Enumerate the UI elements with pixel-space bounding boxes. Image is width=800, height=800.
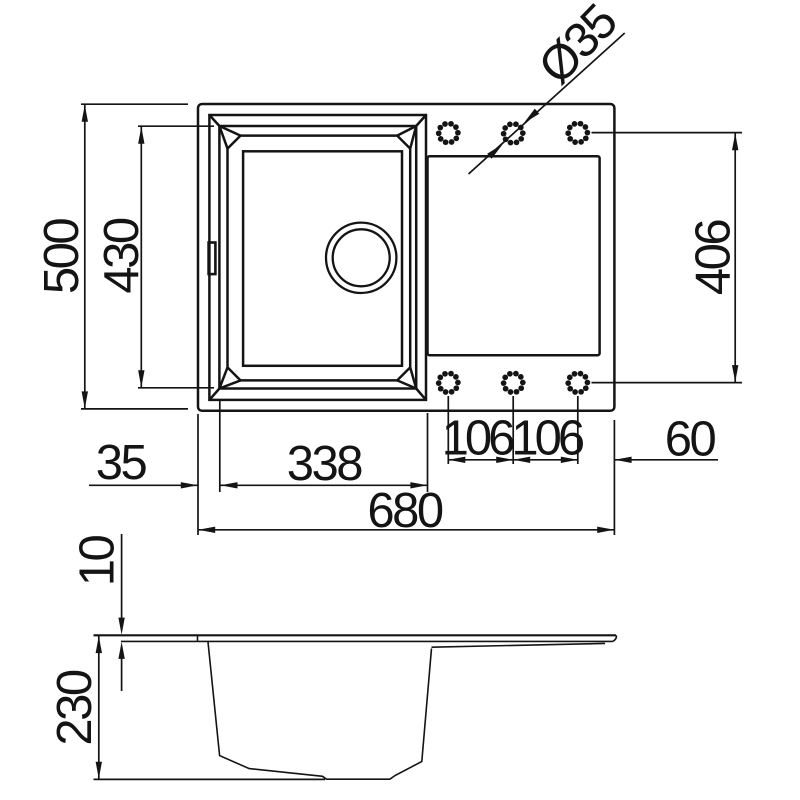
svg-text:Ø35: Ø35 <box>529 0 628 94</box>
svg-text:406: 406 <box>687 220 741 296</box>
svg-text:338: 338 <box>287 437 363 491</box>
svg-text:60: 60 <box>665 413 716 467</box>
svg-text:680: 680 <box>367 484 443 538</box>
svg-text:35: 35 <box>96 436 147 490</box>
svg-text:10: 10 <box>71 536 125 587</box>
svg-text:230: 230 <box>48 670 102 746</box>
svg-text:500: 500 <box>35 219 89 295</box>
svg-text:430: 430 <box>95 218 149 294</box>
svg-text:106106: 106106 <box>442 412 584 466</box>
